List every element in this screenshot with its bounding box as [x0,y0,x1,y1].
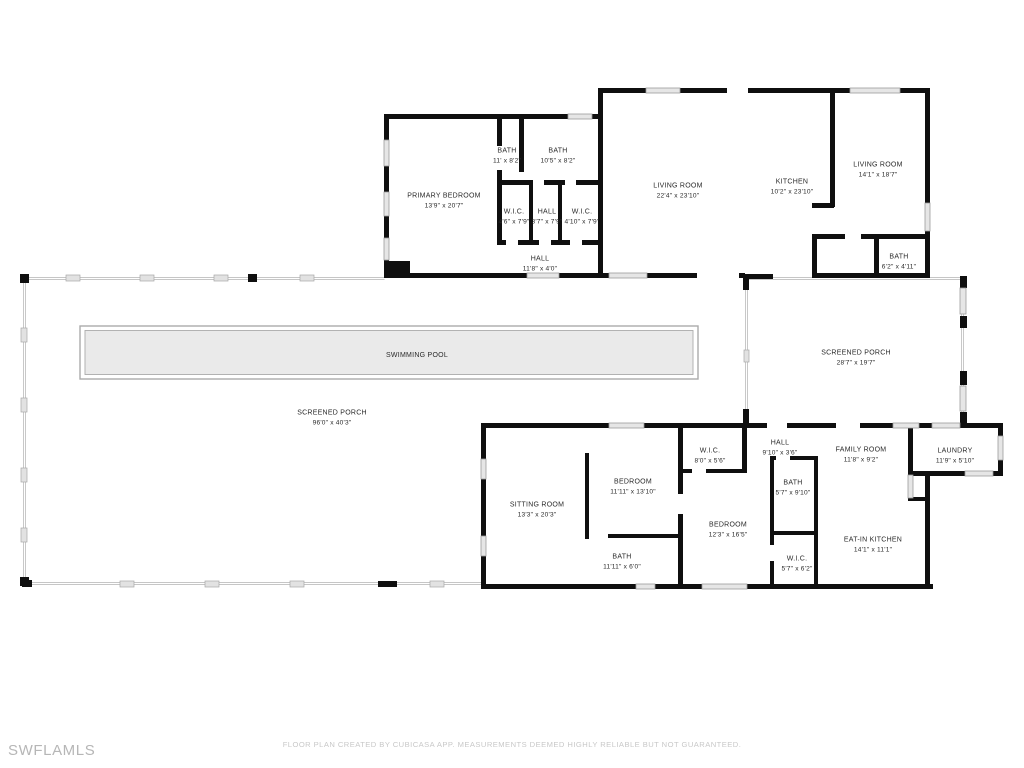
room-label-screened-porch-2: SCREENED PORCH 28'7" x 19'7" [821,348,891,367]
disclaimer-text: FLOOR PLAN CREATED BY CUBICASA APP. MEAS… [0,740,1024,749]
room-label-bath-3: BATH 6'2" x 4'11" [882,252,916,271]
room-label-bedroom-2: BEDROOM 12'3" x 16'5" [709,520,748,539]
room-label-swimming-pool: SWIMMING POOL [386,351,448,361]
room-label-wic-1: W.I.C. 4'6" x 7'9" [498,207,529,226]
watermark-text: SWFLAMLS [8,742,95,759]
room-label-hall-3: HALL 9'10" x 3'6" [763,438,798,457]
room-label-hall-1: HALL 3'7" x 7'9" [531,207,562,226]
room-label-screened-porch-1: SCREENED PORCH 96'0" x 40'3" [297,408,367,427]
floor-plan-page: PRIMARY BEDROOM 13'9" x 20'7" BATH 11' x… [0,0,1024,768]
room-label-kitchen: KITCHEN 10'2" x 23'10" [771,177,814,196]
room-label-hall-2: HALL 11'8" x 4'0" [523,254,557,273]
room-label-laundry: LAUNDRY 11'9" x 5'10" [936,446,974,465]
room-label-wic-3: W.I.C. 8'0" x 5'6" [694,446,725,465]
room-label-bedroom-1: BEDROOM 11'11" x 13'10" [610,477,656,496]
room-label-family-room: FAMILY ROOM 11'8" x 9'2" [836,445,887,464]
room-label-bath-1: BATH 11' x 8'2" [493,146,521,165]
room-label-primary-bedroom: PRIMARY BEDROOM 13'9" x 20'7" [407,191,481,210]
room-label-living-room-1: LIVING ROOM 22'4" x 23'10" [653,181,702,200]
room-label-bath-4: BATH 5'7" x 9'10" [776,478,811,497]
room-label-sitting-room: SITTING ROOM 13'3" x 20'3" [510,500,564,519]
room-label-eat-in-kitchen: EAT-IN KITCHEN 14'1" x 11'1" [844,535,902,554]
room-label-living-room-2: LIVING ROOM 14'1" x 18'7" [853,160,902,179]
room-label-bath-5: BATH 11'11" x 6'0" [603,552,641,571]
room-label-bath-2: BATH 10'5" x 8'2" [541,146,576,165]
room-label-wic-4: W.I.C. 5'7" x 6'2" [781,554,812,573]
room-label-wic-2: W.I.C. 4'10" x 7'9" [565,207,600,226]
room-labels: PRIMARY BEDROOM 13'9" x 20'7" BATH 11' x… [0,0,1024,768]
